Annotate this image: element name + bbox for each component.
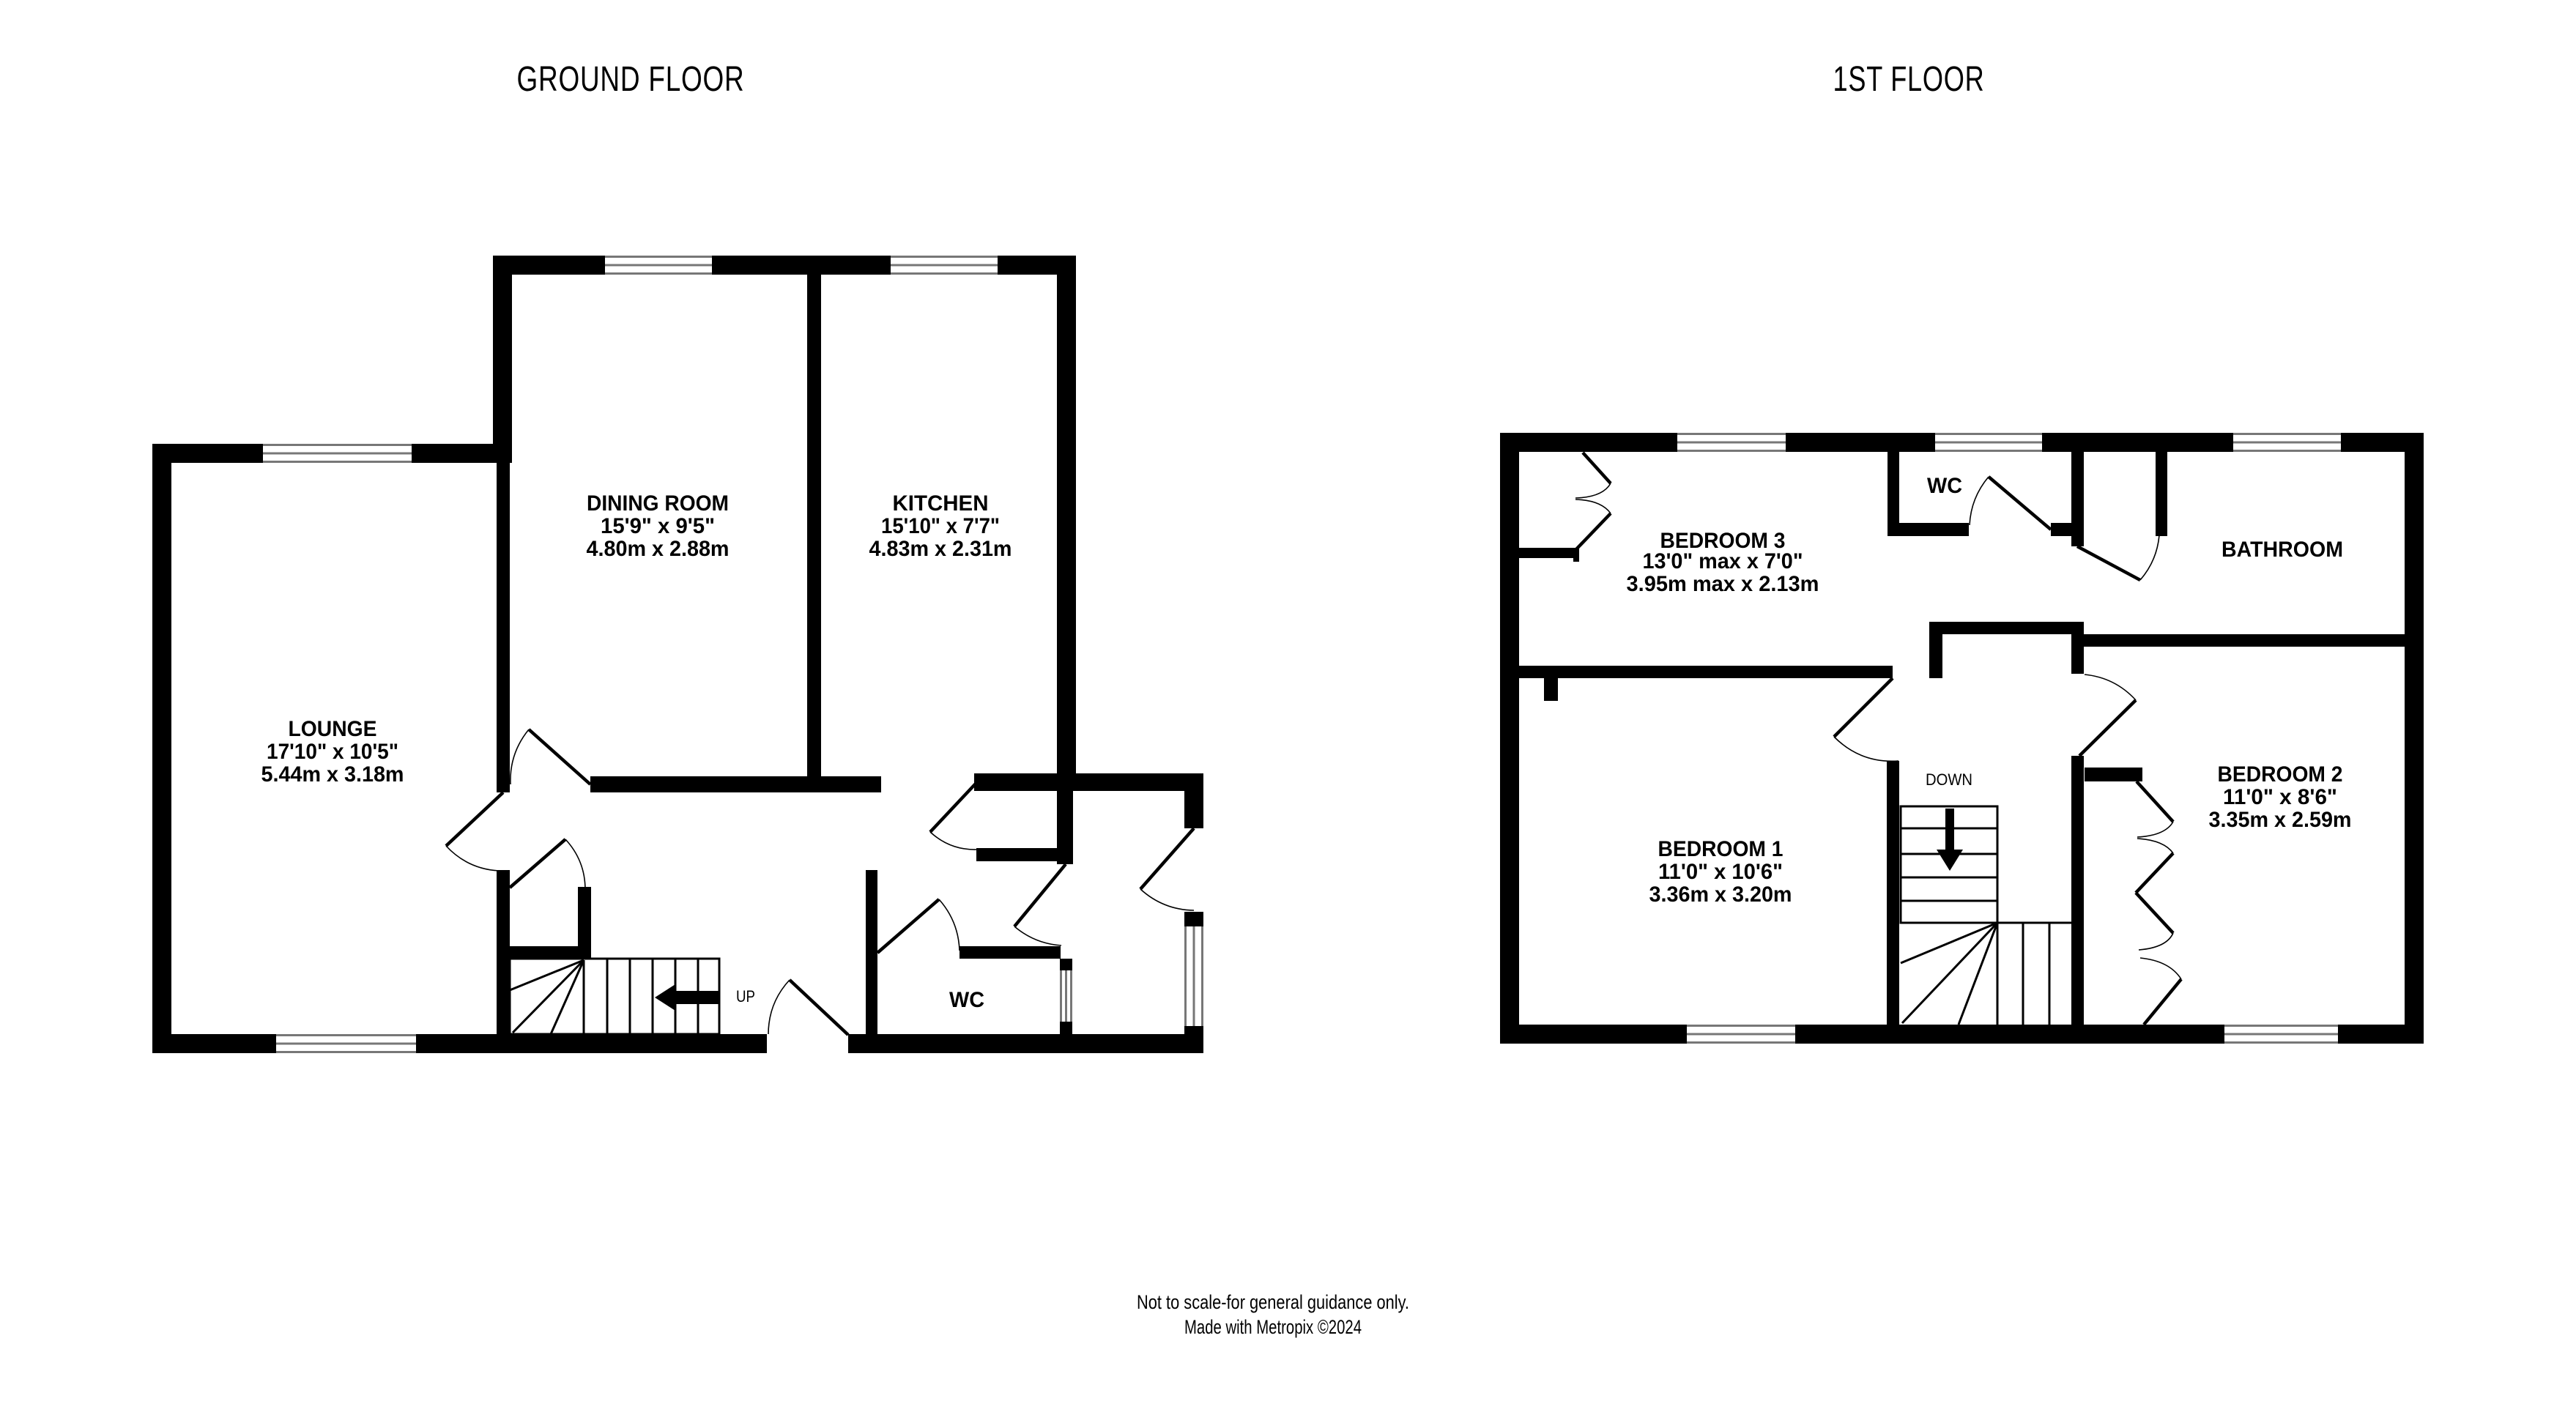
svg-text:LOUNGE: LOUNGE — [289, 717, 377, 741]
svg-text:WC: WC — [1927, 474, 1962, 498]
svg-text:4.80m x 2.88m: 4.80m x 2.88m — [587, 537, 730, 561]
svg-text:BEDROOM 2: BEDROOM 2 — [2218, 762, 2343, 787]
svg-text:KITCHEN: KITCHEN — [893, 491, 989, 516]
svg-text:Not to scale-for general guida: Not to scale-for general guidance only. — [1137, 1291, 1409, 1313]
svg-text:UP: UP — [736, 987, 755, 1006]
svg-text:BEDROOM 1: BEDROOM 1 — [1658, 837, 1783, 861]
svg-text:15'9" x 9'5": 15'9" x 9'5" — [601, 514, 715, 538]
svg-text:DOWN: DOWN — [1926, 770, 1972, 789]
svg-text:11'0" x 10'6": 11'0" x 10'6" — [1658, 860, 1783, 884]
svg-text:DINING ROOM: DINING ROOM — [587, 491, 729, 516]
svg-text:1ST FLOOR: 1ST FLOOR — [1833, 60, 1985, 99]
svg-text:13'0" max x 7'0": 13'0" max x 7'0" — [1643, 549, 1803, 573]
svg-text:3.35m x 2.59m: 3.35m x 2.59m — [2209, 808, 2352, 832]
svg-text:4.83m x 2.31m: 4.83m x 2.31m — [869, 537, 1012, 561]
svg-text:GROUND FLOOR: GROUND FLOOR — [517, 60, 745, 99]
svg-text:WC: WC — [949, 988, 984, 1012]
svg-text:BATHROOM: BATHROOM — [2221, 538, 2343, 562]
svg-text:15'10" x 7'7": 15'10" x 7'7" — [881, 514, 1000, 538]
svg-text:5.44m x 3.18m: 5.44m x 3.18m — [261, 762, 404, 787]
svg-text:3.95m max x 2.13m: 3.95m max x 2.13m — [1627, 572, 1819, 596]
svg-text:17'10" x 10'5": 17'10" x 10'5" — [267, 740, 398, 764]
svg-text:Made with Metropix ©2024: Made with Metropix ©2024 — [1184, 1316, 1362, 1338]
svg-text:11'0" x 8'6": 11'0" x 8'6" — [2223, 785, 2337, 809]
svg-text:3.36m x 3.20m: 3.36m x 3.20m — [1649, 882, 1792, 907]
